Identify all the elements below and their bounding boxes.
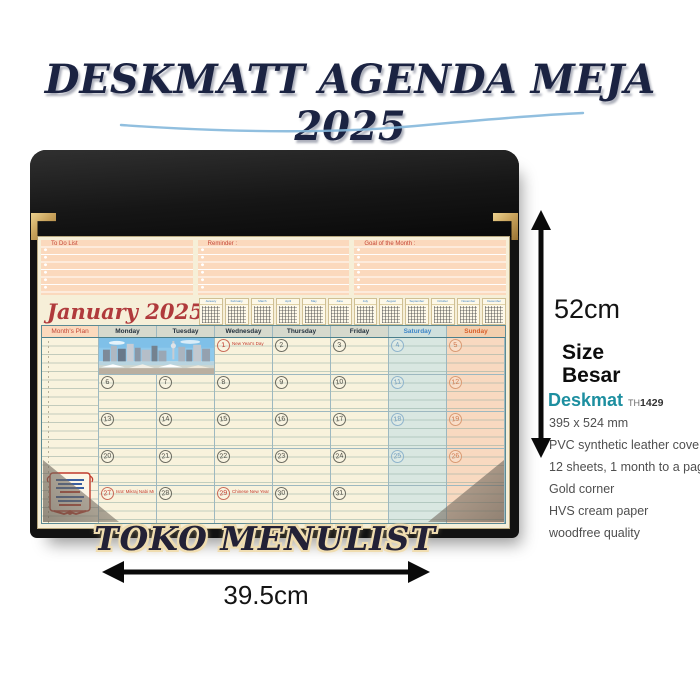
- mini-month-name: March: [252, 299, 274, 305]
- day-number: 20: [100, 449, 115, 464]
- mini-month-name: December: [483, 299, 505, 305]
- day-number: 28: [158, 486, 173, 501]
- memo-panel-label: Reminder :: [208, 241, 237, 247]
- calendar-day-cell: 16: [273, 412, 331, 449]
- day-number: 18: [390, 412, 405, 427]
- mini-month-name: January: [200, 299, 222, 305]
- spec-line: 395 x 524 mm: [549, 412, 700, 434]
- day-header: Sunday: [447, 326, 505, 337]
- memo-panel: To Do List: [41, 240, 193, 295]
- spec-list: 395 x 524 mmPVC synthetic leather cover1…: [549, 412, 700, 544]
- calendar-day-cell: 19: [447, 412, 505, 449]
- day-number: 9: [274, 375, 289, 390]
- mini-month-name: October: [432, 299, 454, 305]
- mini-month-calendar: September: [405, 298, 429, 325]
- mini-month-name: May: [303, 299, 325, 305]
- day-number: 22: [216, 449, 231, 464]
- day-number: 17: [332, 412, 347, 427]
- calendar-day-cell: 4: [389, 338, 447, 375]
- mini-month-name: February: [226, 299, 248, 305]
- mat-leather-flap: [30, 150, 519, 237]
- calendar-day-cell: 22: [215, 449, 273, 486]
- mini-month-calendar: April: [276, 298, 300, 325]
- mini-month-name: July: [355, 299, 377, 305]
- calendar-day-cell: 8: [215, 375, 273, 412]
- day-number: 13: [100, 412, 115, 427]
- mini-month-calendar: February: [225, 298, 249, 325]
- day-number: 6: [100, 375, 115, 390]
- mini-month-grid: [357, 306, 375, 323]
- day-number: 15: [216, 412, 231, 427]
- mini-month-name: June: [329, 299, 351, 305]
- memo-panel-label: Goal of the Month :: [364, 241, 415, 247]
- mini-month-grid: [254, 306, 272, 323]
- mini-month-grid: [279, 306, 297, 323]
- day-header: Friday: [331, 326, 389, 337]
- day-number: 27: [100, 486, 115, 501]
- size-line2: Besar: [562, 364, 620, 387]
- day-number: 4: [390, 338, 405, 353]
- calendar-day-cell: 21: [157, 449, 215, 486]
- day-number: 10: [332, 375, 347, 390]
- mini-month-calendar: November: [457, 298, 481, 325]
- day-number: 30: [274, 486, 289, 501]
- mini-month-calendar: May: [302, 298, 326, 325]
- mini-month-name: August: [380, 299, 402, 305]
- holiday-label: New Year's Day: [232, 341, 264, 346]
- calendar-grid-body: 1New Year's Day2345678910111213141516171…: [42, 338, 505, 523]
- size-line1: Size: [562, 341, 620, 364]
- calendar-day-cell: 6: [99, 375, 157, 412]
- day-number: 26: [448, 449, 463, 464]
- size-label: Size Besar: [562, 341, 620, 387]
- calendar-day-cell: 9: [273, 375, 331, 412]
- day-number: 2: [274, 338, 289, 353]
- memo-panel: Goal of the Month :: [354, 240, 506, 295]
- day-number: 21: [158, 449, 173, 464]
- mini-month-grid: [434, 306, 452, 323]
- model-prefix: TH: [628, 398, 640, 408]
- mini-month-grid: [305, 306, 323, 323]
- day-number: 11: [390, 375, 405, 390]
- calendar-day-cell: 24: [331, 449, 389, 486]
- calendar-grid: Month's PlanMondayTuesdayWednesdayThursd…: [41, 325, 506, 524]
- calendar-day-cell: 10: [331, 375, 389, 412]
- calendar-day-cell: 25: [389, 449, 447, 486]
- mini-month-grid: [408, 306, 426, 323]
- city-skyline-photo: [99, 338, 214, 374]
- day-number: 14: [158, 412, 173, 427]
- mini-month-calendar: June: [328, 298, 352, 325]
- calendar-day-cell: 2: [273, 338, 331, 375]
- calendar-grid-header: Month's PlanMondayTuesdayWednesdayThursd…: [42, 326, 505, 338]
- spec-line: PVC synthetic leather cover: [549, 434, 700, 456]
- calendar-day-cell: 5: [447, 338, 505, 375]
- mini-month-grid: [202, 306, 220, 323]
- calendar-day-cell: 20: [99, 449, 157, 486]
- holiday-label: Chinese New Year: [232, 489, 269, 494]
- day-number: 3: [332, 338, 347, 353]
- holiday-label: Isra' Mikraj Nabi Muhammad SAW: [116, 489, 154, 494]
- mini-month-grid: [485, 306, 503, 323]
- calendar-day-cell: 11: [389, 375, 447, 412]
- mini-month-calendar: March: [251, 298, 275, 325]
- calendar-day-cell: 12: [447, 375, 505, 412]
- month-title: January 2025: [41, 299, 199, 324]
- mini-month-calendar: December: [482, 298, 506, 325]
- day-number: 8: [216, 375, 231, 390]
- day-number: 19: [448, 412, 463, 427]
- calendar-day-cell: 23: [273, 449, 331, 486]
- store-name: TOKO MENULIST: [70, 519, 460, 558]
- day-number: 5: [448, 338, 463, 353]
- calendar-day-cell: 17: [331, 412, 389, 449]
- mini-month-name: April: [277, 299, 299, 305]
- height-label: 52cm: [554, 294, 620, 325]
- day-header: Saturday: [389, 326, 447, 337]
- memo-panels: To Do ListReminder :Goal of the Month :: [41, 240, 506, 295]
- calendar-day-cell: 31: [331, 486, 389, 523]
- mini-month-grid: [331, 306, 349, 323]
- calendar-day-cell: 7: [157, 375, 215, 412]
- day-header: Tuesday: [157, 326, 215, 337]
- calendar-page: To Do ListReminder :Goal of the Month : …: [37, 236, 510, 529]
- day-number: 25: [390, 449, 405, 464]
- mini-month-name: November: [458, 299, 480, 305]
- day-header: Monday: [99, 326, 157, 337]
- mini-month-calendar: January: [199, 298, 223, 325]
- calendar-day-cell: 18: [389, 412, 447, 449]
- day-number: 29: [216, 486, 231, 501]
- calendar-day-cell: 1New Year's Day: [215, 338, 273, 375]
- calendar-day-cell: 3: [331, 338, 389, 375]
- memo-panel: Reminder :: [198, 240, 350, 295]
- calendar-day-cell: 15: [215, 412, 273, 449]
- memo-panel-label: To Do List: [51, 241, 78, 247]
- day-number: 12: [448, 375, 463, 390]
- width-label: 39.5cm: [178, 580, 354, 611]
- model-number: 1429: [640, 397, 663, 409]
- brand-row: DeskmatTH1429: [548, 390, 663, 411]
- mini-month-grid: [460, 306, 478, 323]
- desk-mat: To Do ListReminder :Goal of the Month : …: [30, 150, 519, 538]
- day-number: 16: [274, 412, 289, 427]
- day-number: 23: [274, 449, 289, 464]
- calendar-day-cell: 30: [273, 486, 331, 523]
- month-row: January 2025 JanuaryFebruaryMarchAprilMa…: [41, 297, 506, 326]
- mini-month-grid: [382, 306, 400, 323]
- day-number: 31: [332, 486, 347, 501]
- mini-month-calendar: October: [431, 298, 455, 325]
- calendar-day-cell: 14: [157, 412, 215, 449]
- spec-line: HVS cream paper: [549, 500, 700, 522]
- spec-line: woodfree quality: [549, 522, 700, 544]
- spec-line: 12 sheets, 1 month to a page: [549, 456, 700, 478]
- mini-month-calendar: July: [354, 298, 378, 325]
- day-header: Wednesday: [215, 326, 273, 337]
- calendar-day-cell: 29Chinese New Year: [215, 486, 273, 523]
- city-photo-cell: [99, 338, 215, 375]
- calendar-day-cell: 13: [99, 412, 157, 449]
- product-ad-canvas: DESKMATT AGENDA MEJA 2025 To Do ListRemi…: [0, 0, 700, 700]
- page-title: DESKMATT AGENDA MEJA 2025: [0, 56, 700, 150]
- plan-column-header: Month's Plan: [42, 326, 99, 337]
- title-underline-swoosh: [115, 110, 590, 134]
- day-number: 7: [158, 375, 173, 390]
- mini-month-strip: JanuaryFebruaryMarchAprilMayJuneJulyAugu…: [199, 298, 506, 325]
- mini-month-name: September: [406, 299, 428, 305]
- mini-month-grid: [228, 306, 246, 323]
- spec-line: Gold corner: [549, 478, 700, 500]
- calendar-day-cell: 28: [157, 486, 215, 523]
- day-header: Thursday: [273, 326, 331, 337]
- mini-month-calendar: August: [379, 298, 403, 325]
- day-number: 1: [216, 338, 231, 353]
- brand-name: Deskmat: [548, 390, 623, 410]
- day-number: 24: [332, 449, 347, 464]
